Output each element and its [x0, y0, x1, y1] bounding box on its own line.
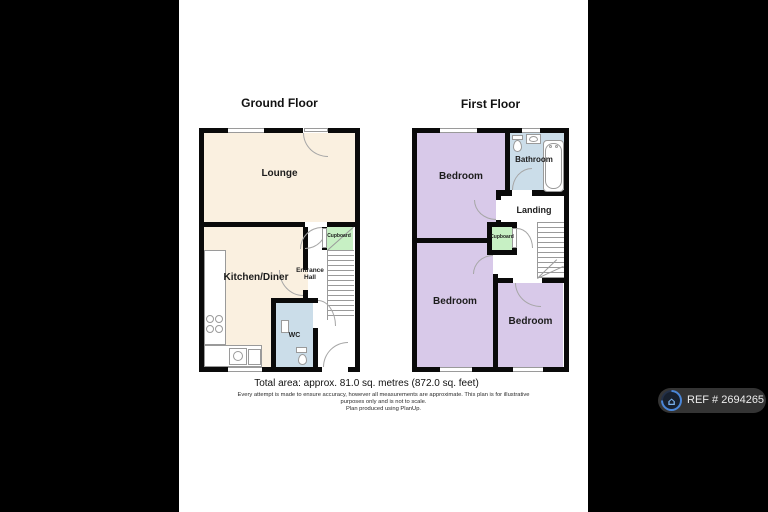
- ref-number: REF # 2694265: [687, 388, 764, 413]
- washer-door-icon: [233, 351, 243, 361]
- toilet-icon: [298, 354, 307, 365]
- wall-segment: [412, 128, 417, 372]
- toilet-icon: [296, 347, 307, 353]
- first-floor-title: First Floor: [412, 97, 569, 111]
- cupboard-label: Cupboard: [488, 235, 516, 241]
- staircase: [537, 222, 564, 278]
- wall-segment: [564, 128, 569, 372]
- hob-burner-icon: [215, 325, 223, 333]
- bedroom-front-label: Bedroom: [417, 171, 505, 182]
- landing-label: Landing: [508, 206, 560, 216]
- house-icon: ⌂: [668, 395, 676, 408]
- tap-icon: [549, 145, 552, 148]
- total-area-text: Total area: approx. 81.0 sq. metres (872…: [179, 378, 554, 389]
- bedroom-third-label: Bedroom: [498, 316, 563, 327]
- wall-segment: [412, 367, 569, 372]
- ground-floor-title: Ground Floor: [199, 96, 360, 110]
- letterbox-background: Ground Floor First Floor: [0, 0, 768, 512]
- brand-logo: ⌂: [661, 390, 682, 411]
- wall-segment: [313, 328, 318, 367]
- floorplan-page: Ground Floor First Floor: [179, 0, 588, 512]
- ref-badge: ⌂ REF # 2694265: [658, 388, 766, 413]
- toilet-icon: [513, 140, 522, 152]
- floor-plan-first: Cupboard Bedroom Bat: [412, 128, 569, 372]
- basin-icon: [529, 136, 538, 142]
- rear-door-gap: [322, 367, 348, 372]
- window: [522, 128, 540, 133]
- door-arc: [517, 228, 533, 248]
- wall-segment: [199, 128, 360, 133]
- door-gap: [512, 190, 532, 196]
- disclaimer-line: Every attempt is made to ensure accuracy…: [179, 392, 588, 399]
- kitchen-sink-icon: [248, 349, 261, 365]
- window: [440, 367, 472, 372]
- bedroom-rear-label: Bedroom: [417, 296, 493, 307]
- hob-burner-icon: [215, 315, 223, 323]
- door-leaf: [304, 128, 328, 132]
- wall-segment: [303, 290, 308, 298]
- wall-segment: [355, 128, 360, 372]
- brand-logo: ⌂: [663, 392, 680, 409]
- hob-burner-icon: [206, 315, 214, 323]
- entrance-hall-label: Entrance Hall: [290, 267, 330, 281]
- disclaimer-line: Plan produced using PlanUp.: [179, 406, 588, 413]
- lounge-label: Lounge: [204, 168, 355, 179]
- bathroom-label: Bathroom: [510, 156, 558, 165]
- bathtub-icon: [545, 143, 562, 189]
- wc-label: WC: [276, 332, 313, 340]
- window: [228, 367, 262, 372]
- cupboard-label: Cupboard: [323, 234, 355, 240]
- window: [228, 128, 264, 133]
- floor-plan-ground: Cupboard Lou: [199, 128, 360, 372]
- disclaimer-line: purposes only and is not to scale.: [179, 399, 588, 406]
- tap-icon: [555, 145, 558, 148]
- window: [513, 367, 543, 372]
- bedroom-front-room: [417, 133, 496, 238]
- hob-burner-icon: [206, 325, 214, 333]
- wall-segment: [417, 238, 487, 243]
- wall-segment: [496, 196, 501, 200]
- wall-segment: [412, 128, 569, 133]
- door-arc: [323, 342, 348, 367]
- window: [440, 128, 477, 133]
